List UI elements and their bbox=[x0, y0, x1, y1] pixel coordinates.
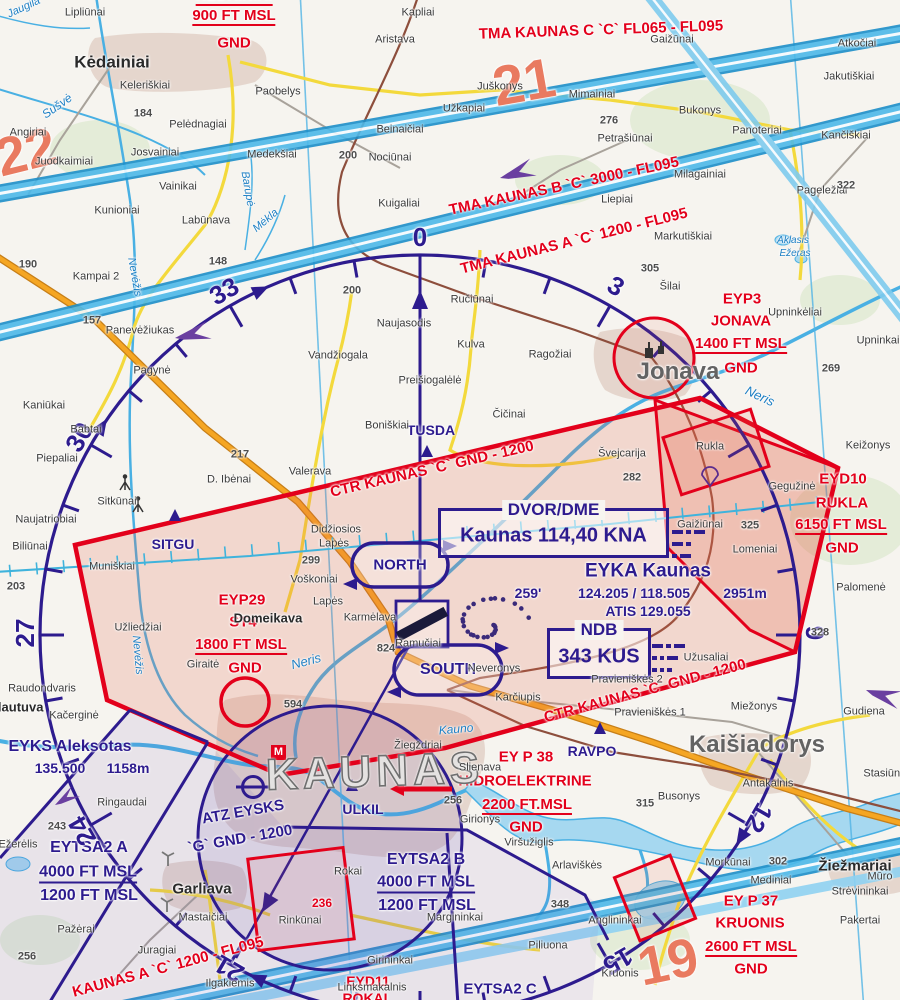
dvor-title: DVOR/DME bbox=[502, 500, 606, 520]
ndb-frequency: 343 KUS bbox=[550, 645, 648, 668]
holding-north-racetrack bbox=[352, 543, 448, 587]
dvor-frequency: Kaunas 114,40 KNA bbox=[441, 524, 666, 547]
m-beacon-marker: M bbox=[271, 745, 286, 760]
dvor-dme-infobox: DVOR/DME Kaunas 114,40 KNA bbox=[438, 508, 669, 558]
holding-south-racetrack bbox=[394, 645, 502, 695]
vfr-chart-viewport: DVOR/DME Kaunas 114,40 KNA NDB 343 KUS M… bbox=[0, 0, 900, 1000]
eyd11-rokai-area bbox=[248, 847, 354, 950]
ndb-infobox: NDB 343 KUS bbox=[547, 628, 651, 679]
morse-code-kus bbox=[652, 640, 688, 676]
morse-code-kna bbox=[672, 526, 708, 562]
eyp3-jonava-circle bbox=[614, 318, 694, 398]
ndb-title: NDB bbox=[575, 620, 624, 640]
chart-canvas bbox=[0, 0, 900, 1000]
